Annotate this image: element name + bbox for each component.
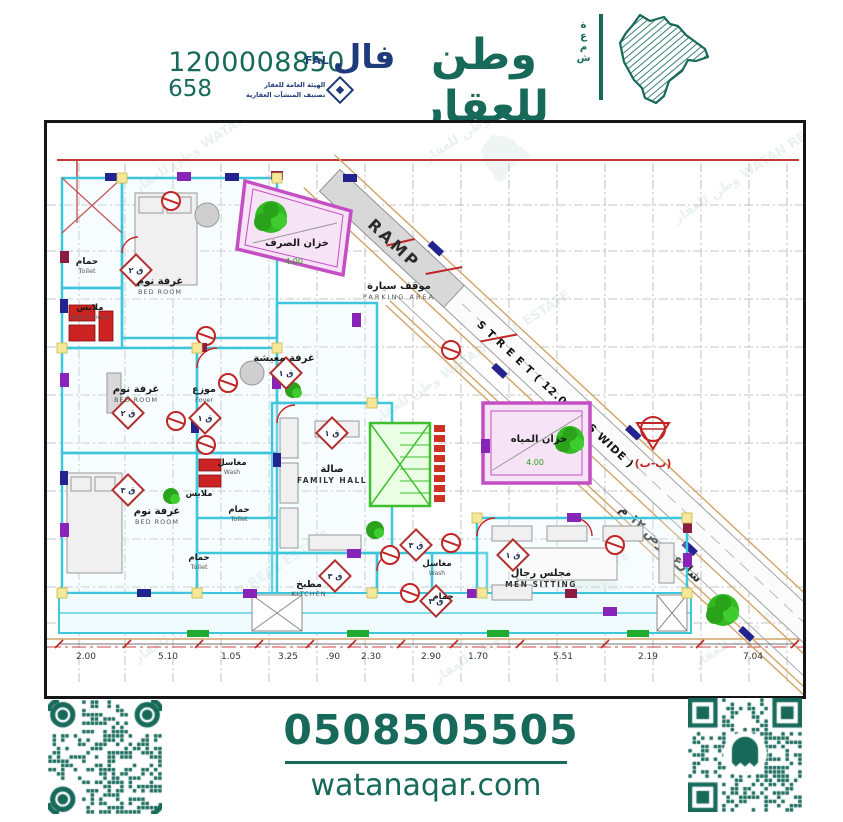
room-label: ملابس: [77, 303, 104, 313]
room-label: غرفة نوم: [134, 506, 181, 517]
room-label: غرفة نوم: [137, 276, 184, 287]
staircase: [370, 423, 445, 506]
room-label: خزان الصرف: [265, 238, 329, 249]
room-label: مغاسل: [422, 559, 451, 569]
dimension-label: 2.00: [76, 652, 96, 662]
room-label-en: Toilet: [189, 563, 207, 571]
authority-name: الهيئة العامة للعقار: [264, 81, 325, 89]
authority-badge: الهيئة العامة للعقار تصنيف المنشآت العقا…: [246, 80, 350, 100]
room-label-en: Foyer: [195, 396, 213, 404]
door-tag: ق ١: [198, 414, 213, 423]
saudi-map-icon: [612, 10, 712, 112]
room-label: مطبخ: [296, 579, 322, 590]
room-label-en: Wash: [429, 570, 445, 577]
website-link[interactable]: watanaqar.com: [276, 768, 576, 803]
door-tag: ق ٢: [121, 409, 136, 418]
dimension-label: 5.51: [553, 652, 573, 662]
room-label-en: BED ROOM: [114, 396, 158, 404]
room-label: حمام: [432, 592, 453, 602]
brand-name-arabic: وطن للعقار: [378, 30, 590, 133]
dimension-label: 1.70: [468, 652, 488, 662]
room-label: حمام: [76, 257, 99, 267]
room-label-en: Walk in Closet: [71, 315, 111, 321]
authority-subtitle: تصنيف المنشآت العقارية: [246, 91, 325, 99]
section-tag: (ب-ب): [635, 457, 672, 470]
dimension-label: 2.19: [638, 652, 658, 662]
dimension-label: .90: [326, 652, 341, 662]
stair-hatch: [434, 425, 445, 502]
door-tag: ق ١: [325, 429, 340, 438]
room-label-en: KITCHEN: [291, 590, 326, 598]
door-tag: ق ١: [279, 369, 294, 378]
door-tag: ق ٣: [121, 486, 136, 495]
room-label: موزع: [192, 384, 216, 395]
dimension-label: 7.04: [743, 652, 763, 662]
room-label: مغاسل: [217, 458, 246, 468]
tank-dimension: 4.00: [285, 257, 303, 266]
door-tag: ق ٣: [409, 541, 424, 550]
door-tag: ق ٢: [129, 266, 144, 275]
dimension-label: 2.90: [421, 652, 441, 662]
room-label: حمام: [228, 505, 249, 515]
floor-plan: وطن للعقار WATAN REAL ESTATE وطن للعقار …: [47, 123, 803, 696]
contact-block: 0508505505 watanaqar.com: [276, 706, 576, 803]
svg-text:وطن للعقار WATAN REAL ESTATE: وطن للعقار WATAN REAL ESTATE: [670, 123, 803, 227]
room-label-en: BED ROOM: [135, 518, 179, 526]
room-label: حمام: [188, 553, 209, 563]
fal-logo-en: FAL: [305, 54, 330, 67]
room-label: ملابس: [186, 489, 213, 499]
dimension-label: 2.30: [361, 652, 381, 662]
room-label: مجلس رجال: [511, 568, 572, 579]
door-tag: ق ٣: [328, 572, 343, 581]
room-label: غرفة نوم: [113, 384, 160, 395]
bottom-wall-band: [59, 593, 691, 633]
room-label-en: Toilet: [229, 515, 247, 523]
whatsapp-number[interactable]: 0508505505: [283, 706, 578, 754]
room-label: غرفة معيشة: [253, 353, 314, 364]
room-label: خزان المياه: [511, 434, 568, 445]
room-label-en: MEN SITTING: [505, 580, 577, 589]
room-label-en: Wash: [224, 469, 240, 476]
room-label-en: FAMILY HALL: [297, 476, 367, 485]
qr-code-snapchat[interactable]: [688, 698, 802, 812]
dimension-label: 5.10: [158, 652, 178, 662]
room-label: موقف سيارة: [367, 281, 431, 292]
floor-plan-frame: وطن للعقار WATAN REAL ESTATE وطن للعقار …: [44, 120, 806, 699]
footer-divider: [285, 761, 567, 764]
room-label-en: PARKING AREA: [363, 293, 435, 301]
room-label-en: BED ROOM: [138, 288, 182, 296]
room-label-en: Toilet: [77, 267, 95, 275]
authority-emblem-icon: [326, 76, 354, 104]
tank-dimension: 4.00: [526, 458, 544, 467]
dimension-label: 3.25: [278, 652, 298, 662]
qr-code-website[interactable]: [48, 700, 162, 814]
door-tag: ق ١: [506, 551, 521, 560]
brand-side-text: شمعة: [578, 20, 589, 100]
dimension-label: 1.05: [221, 652, 241, 662]
brand-divider: [599, 14, 603, 100]
room-label: صالة: [320, 464, 343, 475]
authority-license-number: 658: [130, 76, 212, 102]
